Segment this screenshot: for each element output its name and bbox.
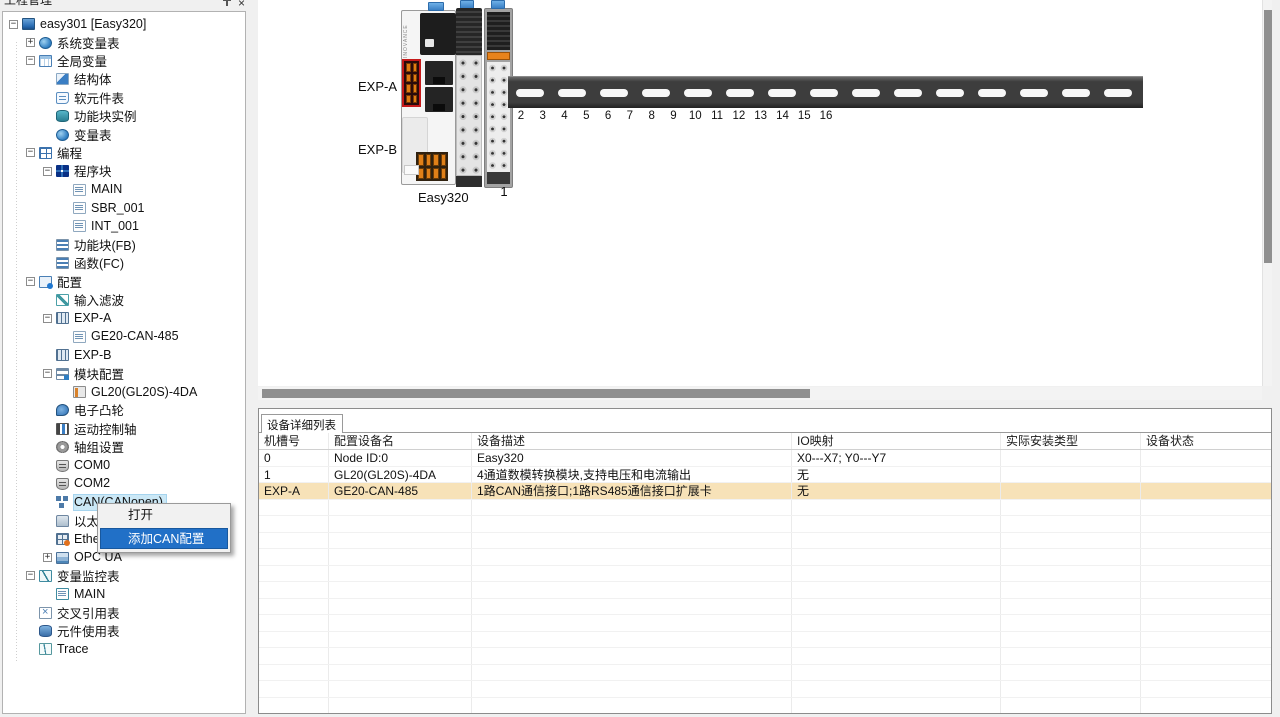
column-header-5[interactable]: 实际安装类型 — [1001, 433, 1141, 449]
table-cell — [329, 615, 472, 631]
tree-item-struct[interactable]: 结构体 — [3, 70, 245, 88]
table-cell — [472, 500, 792, 516]
tree-item-main[interactable]: MAIN — [3, 181, 245, 199]
rail-slot-number: 16 — [815, 110, 837, 122]
tree-item-label: EXP-B — [74, 348, 115, 363]
exp-module-icon — [56, 349, 69, 361]
table-row-empty[interactable] — [259, 549, 1271, 566]
menu-item-add-can-config[interactable]: 添加CAN配置 — [100, 528, 228, 549]
ethernet-port-2 — [425, 87, 453, 112]
table-cell — [329, 500, 472, 516]
rail-slot — [1104, 89, 1132, 97]
expand-expander-icon[interactable]: + — [43, 553, 52, 562]
table-cell — [259, 500, 329, 516]
cpu-tag — [404, 165, 419, 175]
rail-slot — [1062, 89, 1090, 97]
table-cell — [1001, 533, 1141, 549]
tree-item-watch-table[interactable]: −变量监控表 — [3, 567, 245, 585]
tree-item-exp-b[interactable]: EXP-B — [3, 346, 245, 364]
collapse-expander-icon[interactable]: − — [43, 167, 52, 176]
slot-1-label: 1 — [494, 184, 514, 199]
tree-item-module-config[interactable]: −模块配置 — [3, 364, 245, 382]
table-row-2[interactable]: EXP-AGE20-CAN-4851路CAN通信接口;1路RS485通信接口扩展… — [259, 483, 1271, 500]
cam-icon — [56, 404, 69, 416]
table-cell — [1141, 648, 1271, 664]
table-cell — [472, 632, 792, 648]
table-cell — [329, 632, 472, 648]
table-row-empty[interactable] — [259, 648, 1271, 665]
table-cell — [1001, 516, 1141, 532]
pou-page-icon — [73, 184, 86, 196]
horizontal-scrollbar[interactable] — [258, 387, 1262, 400]
table-cell — [1141, 483, 1271, 499]
rail-slot — [516, 89, 544, 97]
table-cell — [792, 698, 1001, 714]
table-cell — [1001, 450, 1141, 466]
tree-item-label: 电子凸轮 — [74, 400, 127, 420]
tree-item-label: 变量表 — [74, 125, 115, 145]
device-detail-table: 机槽号配置设备名设备描述IO映射实际安装类型设备状态 0Node ID:0Eas… — [259, 432, 1271, 713]
device-detail-panel: 设备详细列表 机槽号配置设备名设备描述IO映射实际安装类型设备状态 0Node … — [258, 408, 1272, 714]
rail-slot — [810, 89, 838, 97]
exp-a-connector[interactable] — [402, 59, 421, 107]
din-clip — [428, 2, 444, 11]
table-cell — [1001, 599, 1141, 615]
table-cell — [259, 698, 329, 714]
table-cell: Easy320 — [472, 450, 792, 466]
tree-item-label: 程序块 — [74, 161, 115, 181]
tree-item-label: 配置 — [57, 272, 85, 292]
vertical-scrollbar-thumb[interactable] — [1264, 10, 1272, 263]
rail-slot-number: 9 — [663, 110, 685, 122]
device-config-canvas: EXP-A EXP-B INOVANCE Easy320 1 234567891… — [258, 0, 1262, 386]
rail-slot — [1020, 89, 1048, 97]
table-cell — [792, 500, 1001, 516]
module-card-icon — [73, 386, 86, 398]
tree-item-label: COM0 — [74, 458, 113, 473]
rail-slot-number: 15 — [793, 110, 815, 122]
table-cell — [1141, 450, 1271, 466]
rail-slot — [768, 89, 796, 97]
menu-item-open[interactable]: 打开 — [98, 504, 230, 527]
table-cell — [792, 615, 1001, 631]
table-row-empty[interactable] — [259, 599, 1271, 616]
table-cell — [1141, 549, 1271, 565]
com-port-icon — [56, 478, 69, 490]
cross-ref-icon — [39, 607, 52, 619]
column-header-2[interactable]: 配置设备名 — [329, 433, 472, 449]
collapse-expander-icon[interactable]: − — [43, 314, 52, 323]
tree-item-label: MAIN — [74, 587, 108, 602]
watch-page-icon — [56, 588, 69, 600]
opc-icon — [56, 552, 69, 564]
tree-item-soft-element-table[interactable]: 软元件表 — [3, 89, 245, 107]
fb-list-icon — [56, 239, 69, 251]
watch-icon — [39, 570, 52, 582]
table-cell — [1001, 582, 1141, 598]
tree-item-label: 交叉引用表 — [57, 603, 123, 623]
table-cell — [1001, 615, 1141, 631]
table-cell — [329, 533, 472, 549]
table-cell — [1141, 599, 1271, 615]
table-cell — [329, 698, 472, 714]
table-cell — [1141, 681, 1271, 697]
table-body: 0Node ID:0Easy320X0---X7; Y0---Y71GL20(G… — [259, 450, 1271, 713]
table-cell — [472, 566, 792, 582]
collapse-expander-icon[interactable]: − — [26, 571, 35, 580]
table-cell — [1141, 665, 1271, 681]
rail-slot-number: 13 — [750, 110, 772, 122]
rail-slot — [642, 89, 670, 97]
expansion-module-top — [487, 12, 510, 50]
rail-slot — [684, 89, 712, 97]
table-cell — [472, 681, 792, 697]
tree-item-label: MAIN — [91, 182, 125, 197]
table-cell — [792, 681, 1001, 697]
project-manager-titlebar: 工程管理 × — [0, 0, 247, 11]
tree-item-fc[interactable]: 函数(FC) — [3, 254, 245, 272]
trace-icon — [39, 643, 52, 655]
device-detail-tab[interactable]: 设备详细列表 — [261, 414, 343, 433]
tree-item-exp-a[interactable]: −EXP-A — [3, 309, 245, 327]
table-cell — [792, 599, 1001, 615]
tree-item-label: 函数(FC) — [74, 253, 127, 273]
table-cell — [472, 599, 792, 615]
can-network-icon — [56, 496, 69, 508]
exp-module-icon — [56, 312, 69, 324]
table-row-empty[interactable] — [259, 500, 1271, 517]
din-clip — [491, 0, 505, 9]
table-cell — [1001, 467, 1141, 483]
table-cell — [1001, 632, 1141, 648]
vartab-globe-icon — [56, 129, 69, 141]
panel-splitter[interactable] — [247, 0, 258, 717]
vertical-scrollbar[interactable] — [1262, 0, 1272, 386]
tree-item-label: 元件使用表 — [57, 621, 123, 641]
exp-b-label: EXP-B — [358, 142, 397, 157]
tree-item-ge20-can-485[interactable]: GE20-CAN-485 — [3, 328, 245, 346]
table-cell — [1001, 698, 1141, 714]
table-cell — [1001, 566, 1141, 582]
table-row-1[interactable]: 1GL20(GL20S)-4DA4通道数模转换模块,支持电压和电流输出无 — [259, 467, 1271, 484]
table-cell: 无 — [792, 483, 1001, 499]
column-header-6[interactable]: 设备状态 — [1141, 433, 1271, 449]
table-cell — [1141, 615, 1271, 631]
table-cell — [792, 533, 1001, 549]
rail-slot-number: 6 — [597, 110, 619, 122]
table-cell: 1 — [259, 467, 329, 483]
programming-icon — [39, 147, 52, 159]
expand-expander-icon[interactable]: + — [26, 38, 35, 47]
tree-item-label: 结构体 — [74, 69, 115, 89]
table-cell — [792, 516, 1001, 532]
usage-icon — [39, 625, 52, 637]
panel-title: 工程管理 — [4, 0, 247, 8]
table-cell — [1141, 632, 1271, 648]
com-port-icon — [56, 460, 69, 472]
tree-item-element-usage[interactable]: 元件使用表 — [3, 622, 245, 640]
table-cell — [472, 549, 792, 565]
tree-item-label: 模块配置 — [74, 364, 127, 384]
io-module-foot — [456, 176, 482, 187]
ethercat-icon — [56, 533, 69, 545]
table-cell — [792, 582, 1001, 598]
table-cell — [259, 681, 329, 697]
io-module-top — [456, 8, 482, 55]
rail-slot-number: 8 — [641, 110, 663, 122]
var-table-icon — [39, 55, 52, 67]
table-cell — [792, 632, 1001, 648]
table-cell: GE20-CAN-485 — [329, 483, 472, 499]
tree-item-label: GE20-CAN-485 — [91, 329, 182, 344]
horizontal-scrollbar-thumb[interactable] — [262, 389, 810, 398]
cpu-connector-block — [420, 13, 456, 55]
struct-icon — [56, 73, 69, 85]
tree-item-easy301[interactable]: −easy301 [Easy320] — [3, 15, 245, 33]
rail-slot — [726, 89, 754, 97]
table-cell — [329, 599, 472, 615]
rail-slot-number: 11 — [706, 110, 728, 122]
collapse-expander-icon[interactable]: − — [26, 148, 35, 157]
tree-item-input-filter[interactable]: 输入滤波 — [3, 291, 245, 309]
table-row-empty[interactable] — [259, 615, 1271, 632]
table-cell — [259, 582, 329, 598]
usb-port — [425, 39, 434, 47]
collapse-expander-icon[interactable]: − — [26, 56, 35, 65]
tree-item-cross-ref[interactable]: 交叉引用表 — [3, 604, 245, 622]
tree-item-label: 变量监控表 — [57, 566, 123, 586]
collapse-expander-icon[interactable]: − — [26, 277, 35, 286]
gear-icon — [56, 441, 69, 453]
table-row-empty[interactable] — [259, 582, 1271, 599]
tree-item-label: 系统变量表 — [57, 33, 123, 53]
rail-slot — [558, 89, 586, 97]
table-cell — [792, 665, 1001, 681]
tree-item-label: 编程 — [57, 143, 85, 163]
table-cell: GL20(GL20S)-4DA — [329, 467, 472, 483]
collapse-expander-icon[interactable]: − — [9, 20, 18, 29]
table-row-0[interactable]: 0Node ID:0Easy320X0---X7; Y0---Y7 — [259, 450, 1271, 467]
tree-item-label: 功能块实例 — [74, 106, 140, 126]
tree-item-label: 输入滤波 — [74, 290, 127, 310]
tree-item-label: 全局变量 — [57, 51, 110, 71]
close-icon[interactable]: × — [238, 0, 245, 10]
table-cell — [1001, 483, 1141, 499]
tree-item-label: INT_001 — [91, 219, 142, 234]
tree-item-fb[interactable]: 功能块(FB) — [3, 236, 245, 254]
tree-item-fb-instance[interactable]: 功能块实例 — [3, 107, 245, 125]
program-blocks-icon — [56, 165, 69, 177]
tree-item-e-cam[interactable]: 电子凸轮 — [3, 401, 245, 419]
tree-item-gl20-4da[interactable]: GL20(GL20S)-4DA — [3, 383, 245, 401]
tree-item-sbr-001[interactable]: SBR_001 — [3, 199, 245, 217]
rail-slot-number: 5 — [575, 110, 597, 122]
io-module-terminals[interactable] — [456, 55, 482, 176]
tree-item-label: GL20(GL20S)-4DA — [91, 385, 200, 400]
rail-slot-number: 2 — [510, 110, 532, 122]
tree-item-program-blocks[interactable]: −程序块 — [3, 162, 245, 180]
table-cell — [1001, 681, 1141, 697]
exp-a-label: EXP-A — [358, 79, 397, 94]
tree-item-programming[interactable]: −编程 — [3, 144, 245, 162]
table-cell — [1001, 665, 1141, 681]
card-page-icon — [73, 331, 86, 343]
rail-slot — [978, 89, 1006, 97]
table-cell — [1141, 500, 1271, 516]
table-cell — [472, 665, 792, 681]
rail-slot-number: 14 — [772, 110, 794, 122]
cpu-terminal-block — [416, 152, 448, 181]
plc-monitor-icon — [22, 18, 35, 30]
tree-item-motion-axis[interactable]: 运动控制轴 — [3, 420, 245, 438]
tree-item-config[interactable]: −配置 — [3, 272, 245, 290]
soft-element-icon — [56, 92, 69, 104]
tree-item-system-vars[interactable]: +系统变量表 — [3, 33, 245, 51]
table-cell — [329, 648, 472, 664]
table-cell — [259, 533, 329, 549]
table-row-empty[interactable] — [259, 698, 1271, 714]
rail-slot-numbers: 2345678910111213141516 — [510, 110, 837, 122]
project-tree: −easy301 [Easy320]+系统变量表−全局变量结构体软元件表功能块实… — [3, 12, 245, 659]
tree-item-int-001[interactable]: INT_001 — [3, 217, 245, 235]
column-header-3[interactable]: 设备描述 — [472, 433, 792, 449]
table-cell: EXP-A — [259, 483, 329, 499]
table-row-empty[interactable] — [259, 665, 1271, 682]
tree-item-label: 轴组设置 — [74, 437, 127, 457]
tree-item-label: SBR_001 — [91, 201, 148, 216]
table-cell: 无 — [792, 467, 1001, 483]
table-cell — [792, 549, 1001, 565]
table-row-empty[interactable] — [259, 632, 1271, 649]
ethernet-port-1 — [425, 61, 453, 85]
tree-item-com0[interactable]: COM0 — [3, 456, 245, 474]
tree-item-trace[interactable]: Trace — [3, 640, 245, 658]
table-cell — [1141, 467, 1271, 483]
project-tree-panel: −easy301 [Easy320]+系统变量表−全局变量结构体软元件表功能块实… — [2, 11, 246, 714]
expansion-module-foot — [487, 172, 510, 184]
rail-slot-number: 3 — [532, 110, 554, 122]
pou-page-icon — [73, 202, 86, 214]
tree-item-label: COM2 — [74, 476, 113, 491]
tree-item-label: 功能块(FB) — [74, 235, 139, 255]
module-config-icon — [56, 368, 69, 380]
table-cell — [259, 665, 329, 681]
table-cell — [259, 632, 329, 648]
tree-item-axis-group[interactable]: 轴组设置 — [3, 438, 245, 456]
rail-slot — [936, 89, 964, 97]
tree-item-label: EXP-A — [74, 311, 115, 326]
table-cell — [1141, 566, 1271, 582]
tree-item-global-vars[interactable]: −全局变量 — [3, 52, 245, 70]
tree-item-label: easy301 [Easy320] — [40, 17, 149, 32]
table-cell — [329, 582, 472, 598]
motion-axis-icon — [56, 423, 69, 435]
table-cell — [472, 615, 792, 631]
table-cell — [259, 599, 329, 615]
table-cell — [259, 549, 329, 565]
table-cell — [472, 582, 792, 598]
table-row-empty[interactable] — [259, 566, 1271, 583]
table-cell — [1141, 533, 1271, 549]
tree-item-label: 运动控制轴 — [74, 419, 140, 439]
tree-item-label: 软元件表 — [74, 88, 127, 108]
table-cell: 1路CAN通信接口;1路RS485通信接口扩展卡 — [472, 483, 792, 499]
rail-slot-number: 10 — [684, 110, 706, 122]
rail-slot-number: 7 — [619, 110, 641, 122]
pou-page-icon — [73, 220, 86, 232]
table-cell: 0 — [259, 450, 329, 466]
collapse-expander-icon[interactable]: − — [43, 369, 52, 378]
table-cell: 4通道数模转换模块,支持电压和电流输出 — [472, 467, 792, 483]
table-cell — [329, 549, 472, 565]
fb-instance-icon — [56, 110, 69, 122]
table-cell — [792, 566, 1001, 582]
table-cell — [329, 566, 472, 582]
table-cell — [259, 648, 329, 664]
rail-slot — [600, 89, 628, 97]
tree-item-label: Trace — [57, 642, 92, 657]
table-cell — [1141, 516, 1271, 532]
ethernet-icon — [56, 515, 69, 527]
table-cell — [472, 698, 792, 714]
rail-slot — [852, 89, 880, 97]
autoshop-window: 工程管理 × −easy301 [Easy320]+系统变量表−全局变量结构体软… — [0, 0, 1280, 717]
tree-item-var-table[interactable]: 变量表 — [3, 125, 245, 143]
table-cell — [1001, 648, 1141, 664]
table-cell — [1141, 582, 1271, 598]
config-chip-icon — [39, 276, 52, 288]
rail-slot-number: 4 — [554, 110, 576, 122]
table-row-empty[interactable] — [259, 681, 1271, 698]
table-cell — [259, 566, 329, 582]
table-cell — [472, 533, 792, 549]
table-cell — [1001, 500, 1141, 516]
table-cell — [329, 665, 472, 681]
table-cell — [1141, 698, 1271, 714]
rail-slot-number: 12 — [728, 110, 750, 122]
table-row-empty[interactable] — [259, 533, 1271, 550]
table-cell: Node ID:0 — [329, 450, 472, 466]
expansion-module-terminals — [487, 62, 510, 172]
table-header-row: 机槽号配置设备名设备描述IO映射实际安装类型设备状态 — [259, 433, 1271, 450]
table-cell: X0---X7; Y0---Y7 — [792, 450, 1001, 466]
table-cell — [329, 516, 472, 532]
context-menu: 打开 添加CAN配置 — [97, 503, 231, 553]
table-cell — [259, 516, 329, 532]
expansion-module-latch — [487, 52, 510, 60]
table-cell — [259, 615, 329, 631]
table-cell — [1001, 549, 1141, 565]
cpu-name-label: Easy320 — [418, 190, 469, 205]
din-rail[interactable] — [508, 76, 1143, 108]
tree-item-watch-main[interactable]: MAIN — [3, 585, 245, 603]
column-header-1[interactable]: 机槽号 — [259, 433, 329, 449]
column-header-4[interactable]: IO映射 — [792, 433, 1001, 449]
table-row-empty[interactable] — [259, 516, 1271, 533]
filter-wave-icon — [56, 294, 69, 306]
table-cell — [472, 648, 792, 664]
tree-item-com2[interactable]: COM2 — [3, 475, 245, 493]
fc-list-icon — [56, 257, 69, 269]
table-cell — [792, 648, 1001, 664]
sysvar-globe-icon — [39, 37, 52, 49]
table-cell — [472, 516, 792, 532]
pin-icon[interactable] — [223, 0, 231, 8]
rail-slot — [894, 89, 922, 97]
table-cell — [329, 681, 472, 697]
